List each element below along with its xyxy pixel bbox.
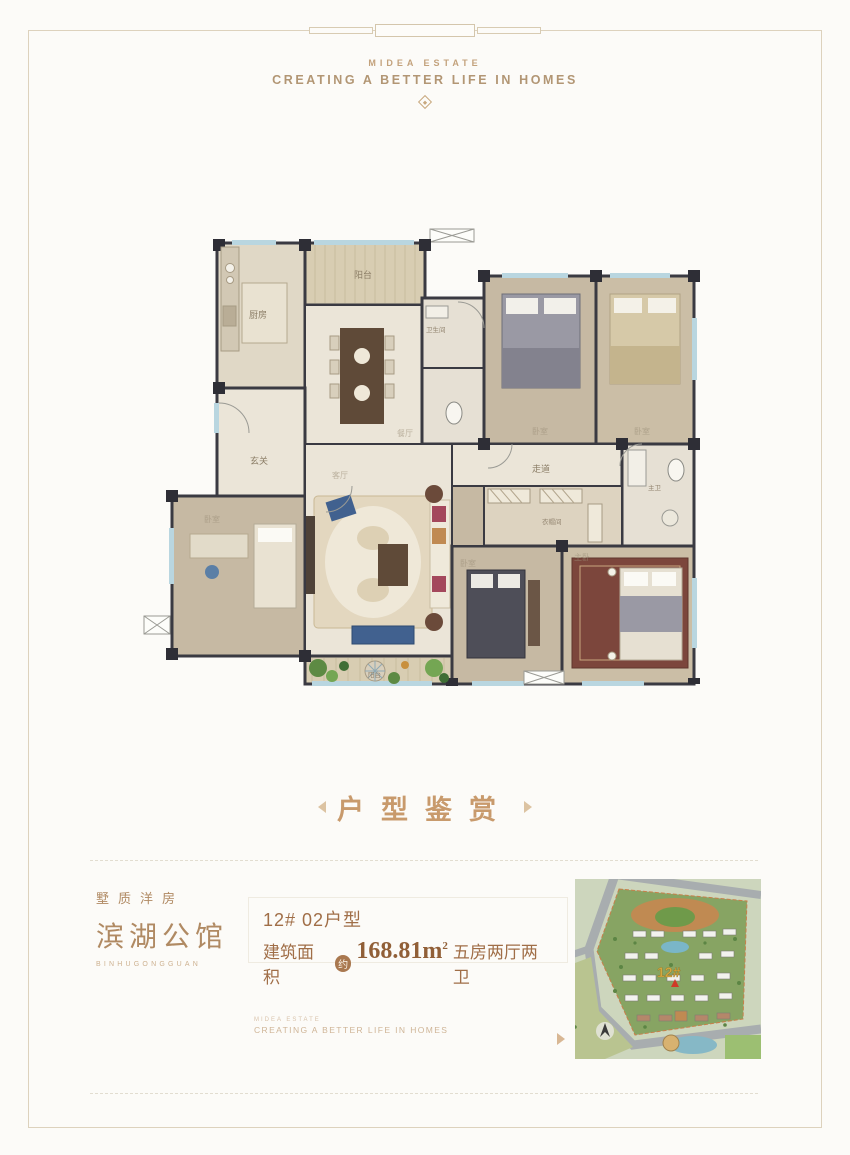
label-dining: 餐厅 (397, 429, 413, 438)
living-room-furniture (306, 485, 450, 644)
bed-bottom-mid (467, 570, 540, 658)
label-bedroom-bottom-mid: 卧室 (460, 558, 476, 568)
label-master-bedroom: 主卧 (574, 552, 590, 562)
small-pond (661, 941, 689, 953)
brand-name: MIDEA ESTATE (0, 58, 850, 68)
label-bedroom-left: 卧室 (204, 514, 220, 524)
compass-icon (596, 1022, 614, 1040)
label-master-bath: 主卫 (648, 483, 662, 492)
approx-badge: 约 (335, 955, 352, 972)
label-balcony-top: 阳台 (354, 269, 372, 280)
map-arrow-icon (557, 1033, 565, 1045)
label-bedroom-top-mid: 卧室 (532, 426, 548, 436)
ornament-rect (375, 24, 475, 37)
area-value: 168.81m2 (356, 938, 448, 965)
dashed-separator-bottom (90, 1093, 758, 1094)
floor-plan-svg: 厨房 阳台 餐厅 玄关 卫生间 卧室 卧室 走道 主卫 卧室 客厅 卧室 衣帽间… (142, 228, 712, 688)
clubhouse (663, 1035, 679, 1051)
watermark-tagline: CREATING A BETTER LIFE IN HOMES (254, 1025, 448, 1035)
top-ornament (0, 24, 850, 37)
dashed-separator-top (90, 860, 758, 861)
ornament-bar-right (477, 27, 541, 34)
bed-top-mid (502, 294, 580, 388)
map-building-label: 12# (657, 964, 681, 980)
label-balcony-bottom: 阳台 (368, 670, 381, 679)
label-living: 客厅 (332, 470, 348, 480)
floor-plan: 厨房 阳台 餐厅 玄关 卫生间 卧室 卧室 走道 主卫 卧室 客厅 卧室 衣帽间… (142, 228, 712, 688)
label-entry: 玄关 (250, 455, 268, 466)
brand-title: 滨湖公馆 (96, 915, 246, 955)
ornament-bar-left (309, 27, 373, 34)
area-superscript: 2 (442, 940, 448, 952)
rooms-spec: 五房两厅两卫 (453, 938, 553, 988)
brand-pinyin: BINHUGONGGUAN (96, 961, 246, 968)
area-label: 建筑面积 (263, 938, 330, 988)
unit-number: 12# 02户型 (263, 906, 553, 932)
brand-tagline: CREATING A BETTER LIFE IN HOMES (0, 73, 850, 87)
central-green (655, 907, 695, 927)
unit-info-box: 12# 02户型 建筑面积 约 168.81m2 五房两厅两卫 (248, 897, 568, 963)
footer-watermark: MIDEA ESTATE CREATING A BETTER LIFE IN H… (254, 1017, 448, 1035)
label-bedroom-top-right: 卧室 (634, 426, 650, 436)
title-arrow-right-icon (524, 801, 532, 813)
section-title: 户型鉴赏 (0, 788, 850, 827)
poster-page: MIDEA ESTATE CREATING A BETTER LIFE IN H… (0, 0, 850, 1155)
label-corridor: 走道 (532, 463, 550, 474)
brand-block: 墅质洋房 滨湖公馆 BINHUGONGGUAN (96, 888, 246, 968)
label-cloakroom: 衣帽间 (542, 517, 562, 526)
header: MIDEA ESTATE CREATING A BETTER LIFE IN H… (0, 58, 850, 87)
watermark-brand: MIDEA ESTATE (254, 1017, 448, 1023)
label-kitchen: 厨房 (249, 309, 267, 320)
master-bedroom-furniture (572, 558, 688, 668)
brand-subtitle: 墅质洋房 (96, 888, 246, 907)
label-bath: 卫生间 (426, 325, 446, 334)
site-map-svg: 12# (575, 879, 761, 1059)
bed-top-right (610, 294, 680, 384)
site-map: 12# (575, 879, 761, 1059)
diamond-icon (418, 95, 432, 109)
